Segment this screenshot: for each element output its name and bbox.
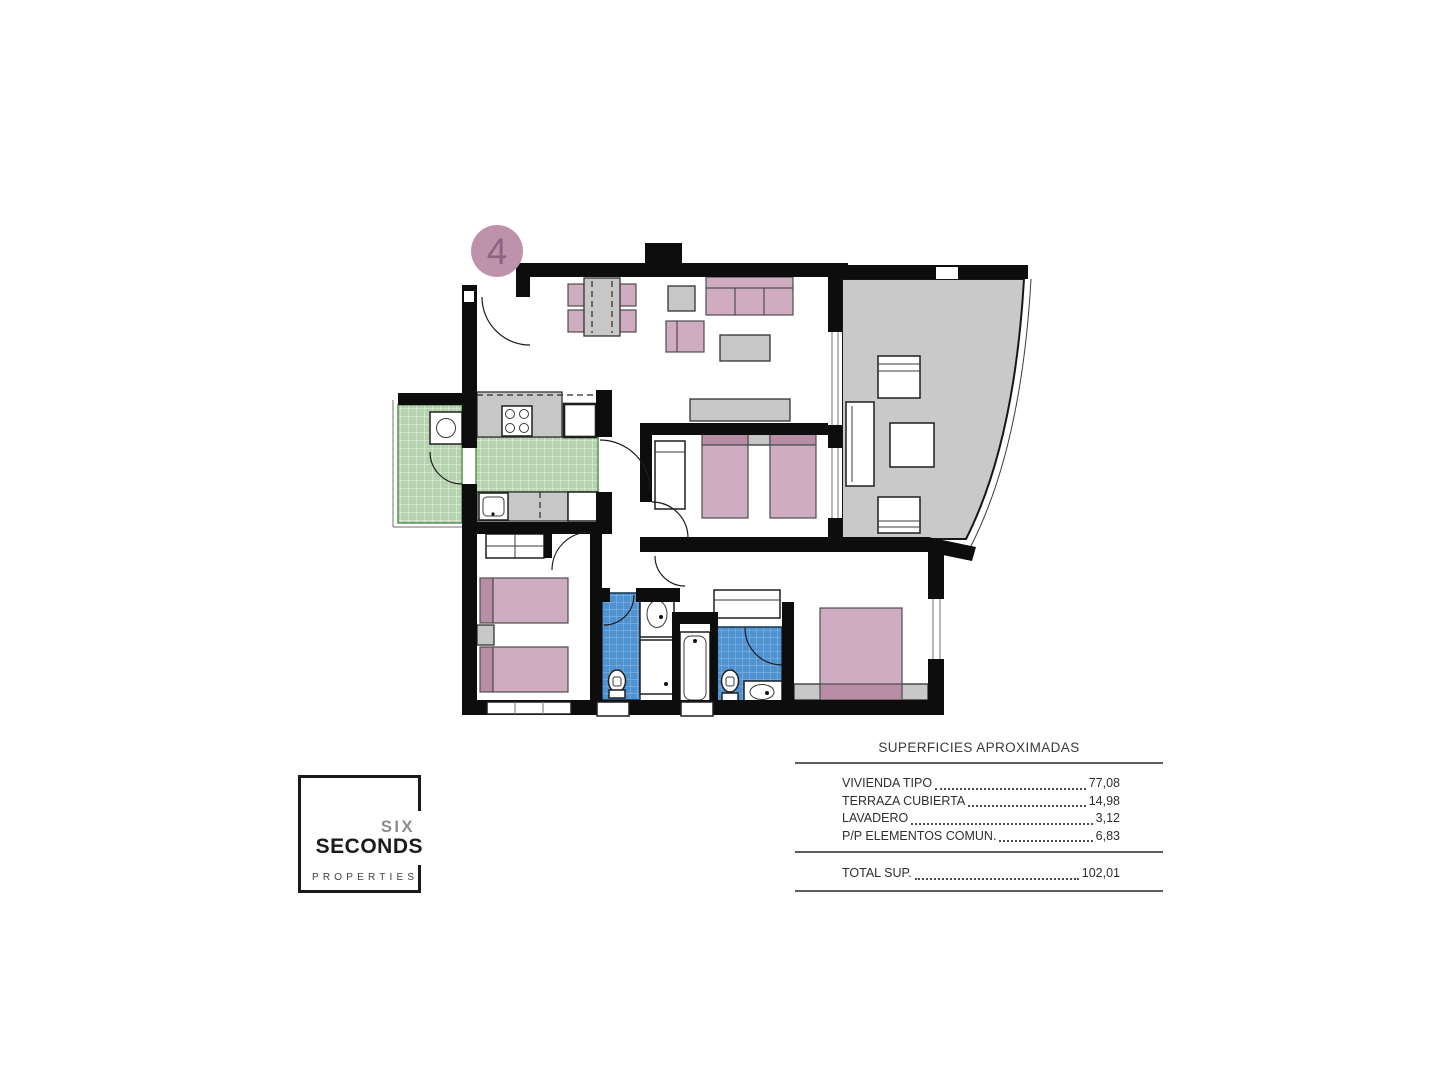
total-label: TOTAL SUP. [842,865,912,883]
row-label: LAVADERO [842,810,908,828]
kitchen-floor [476,437,598,492]
row-value: 6,83 [1096,828,1120,846]
total-section: TOTAL SUP. 102,01 [795,853,1163,890]
table-row: TERRAZA CUBIERTA 14,98 [842,793,1120,811]
dining-set [568,278,636,336]
stove [502,406,532,436]
table-row: VIVIENDA TIPO 77,08 [842,775,1120,793]
unit-number: 4 [487,231,508,272]
hall-wardrobe [714,590,780,618]
dot-leader [968,805,1086,807]
floorplan-drawing: 4 [0,0,1440,1080]
floorplan-sheet: 4 SUPERFICIES APROXIMADAS VIVIENDA TIPO … [0,0,1440,1080]
dot-leader [935,788,1086,790]
table-rule-bottom [795,890,1163,892]
dot-leader [915,878,1079,880]
areas-table: SUPERFICIES APROXIMADAS VIVIENDA TIPO 77… [795,740,1163,892]
table-row: LAVADERO 3,12 [842,810,1120,828]
company-logo: SIX SECONDS PROPERTIES [298,775,421,893]
total-row: TOTAL SUP. 102,01 [842,865,1120,883]
bathtub [680,632,710,704]
row-value: 3,12 [1096,810,1120,828]
coffee-table [720,335,770,361]
total-value: 102,01 [1082,865,1120,883]
side-table [668,286,695,311]
row-label: P/P ELEMENTOS COMUN. [842,828,996,846]
row-value: 14,98 [1089,793,1120,811]
kitchen-sink [479,493,508,520]
row-value: 77,08 [1089,775,1120,793]
kitchen-column [564,404,596,437]
tv-cabinet [690,399,790,421]
areas-table-title: SUPERFICIES APROXIMADAS [795,740,1163,755]
dot-leader [911,823,1092,825]
washing-machine [430,412,462,444]
table-row: P/P ELEMENTOS COMUN. 6,83 [842,828,1120,846]
dot-leader [999,840,1092,842]
unit-badge: 4 [471,225,523,277]
sofa [706,277,793,315]
logo-properties: PROPERTIES [312,872,418,883]
master-bedroom-furniture [794,608,928,700]
areas-rows: VIVIENDA TIPO 77,08 TERRAZA CUBIERTA 14,… [795,764,1163,851]
logo-seconds: SECONDS [316,835,423,859]
bedroom1-furniture [655,425,816,518]
row-label: VIVIENDA TIPO [842,775,932,793]
row-label: TERRAZA CUBIERTA [842,793,965,811]
armchair [666,321,704,352]
